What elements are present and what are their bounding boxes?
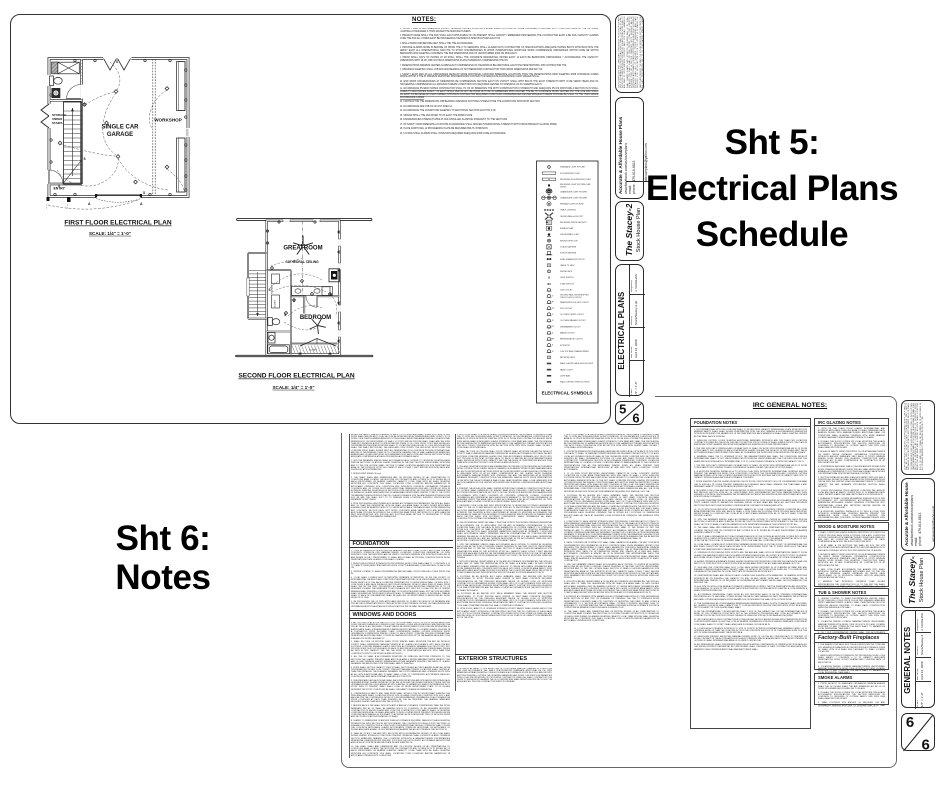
svg-text:CATHEDRAL CEILING: CATHEDRAL CEILING (285, 260, 319, 264)
svg-text:G: G (552, 296, 553, 298)
svg-text:A: A (140, 202, 143, 206)
svg-text:6: 6 (632, 411, 639, 426)
svg-text:SINGLE CAR: SINGLE CAR (101, 125, 139, 131)
svg-text:220V OUTLET: 220V OUTLET (560, 308, 573, 310)
svg-text:CLOSET: CLOSET (309, 350, 318, 352)
svg-text:LIGHT BAR: LIGHT BAR (560, 375, 571, 378)
svg-text:2: 2 (67, 208, 69, 210)
svg-text:WP: WP (551, 302, 553, 304)
svg-text:S: S (58, 184, 60, 188)
svg-text:DISHWASHER OUTLET: DISHWASHER OUTLET (560, 325, 582, 328)
svg-text:SCALE: 1/4" = 1'-0": SCALE: 1/4" = 1'-0" (272, 385, 314, 390)
svg-text:SCALE: 1/4" = 1'-0": SCALE: 1/4" = 1'-0" (89, 231, 131, 236)
svg-text:STAIRS: STAIRS (52, 121, 62, 125)
svg-text:A: A (88, 202, 91, 206)
svg-text:BEDROOM: BEDROOM (300, 315, 331, 321)
svg-text:WORKSHOP: WORKSHOP (154, 118, 182, 123)
svg-text:SECOND FLOOR ELECTRICAL PLAN: SECOND FLOOR ELECTRICAL PLAN (238, 373, 355, 380)
svg-text:LIGHT SWITCH: LIGHT SWITCH (560, 277, 574, 279)
svg-text:R: R (552, 332, 553, 334)
svg-text:LOW VOLTAGE TRANSFORMER: LOW VOLTAGE TRANSFORMER (560, 350, 589, 353)
svg-text:CABLE TV JACK: CABLE TV JACK (560, 264, 575, 267)
svg-text:DUAL SPEAKER SPOT/LITE: DUAL SPEAKER SPOT/LITE (560, 258, 585, 261)
svg-text:EXTERIOR: EXTERIOR (560, 345, 570, 347)
svg-text:N: N (548, 357, 549, 359)
svg-text:CLOTHES WASHER OUTLET: CLOTHES WASHER OUTLET (560, 319, 587, 322)
svg-text:E: E (552, 345, 553, 347)
svg-text:VANITY LIGHT: VANITY LIGHT (560, 368, 574, 371)
svg-text:NETWORK JACK: NETWORK JACK (560, 356, 576, 359)
svg-text:WALL LIGHTED HALF HIGH SCONCE: WALL LIGHTED HALF HIGH SCONCE (560, 362, 594, 365)
svg-text:S: S (269, 288, 271, 292)
svg-text:220: 220 (551, 308, 554, 310)
svg-text:3 WAY SWITCH: 3 WAY SWITCH (560, 282, 574, 285)
svg-text:RANGE OUTLET: RANGE OUTLET (560, 332, 576, 335)
svg-text:CLOTHES DRYER OUTLET: CLOTHES DRYER OUTLET (560, 314, 585, 316)
svg-text:LV: LV (552, 351, 554, 353)
svg-text:D: D (552, 314, 553, 316)
svg-text:FIRST FLOOR ELECTRICAL PLAN: FIRST FLOOR ELECTRICAL PLAN (64, 220, 171, 227)
svg-text:S: S (143, 191, 145, 195)
svg-text:6: 6 (905, 714, 913, 731)
svg-text:S3: S3 (547, 282, 551, 286)
svg-text:S: S (548, 276, 550, 280)
svg-text:GARAGE: GARAGE (107, 132, 133, 138)
svg-text:5: 5 (619, 402, 626, 416)
svg-text:S: S (293, 299, 295, 303)
svg-text:PHONE JACK: PHONE JACK (560, 270, 573, 273)
svg-text:ELECTRICAL SYMBOLS: ELECTRICAL SYMBOLS (542, 391, 593, 396)
svg-text:6: 6 (921, 736, 929, 752)
svg-text:110V OUTLET: 110V OUTLET (560, 290, 573, 292)
svg-text:CIRCUIT (GFCI) OUTLET: CIRCUIT (GFCI) OUTLET (560, 297, 583, 299)
svg-text:S: S (330, 293, 332, 297)
svg-text:REF: REF (551, 338, 554, 340)
svg-text:REFRIGERATOR OUTLET: REFRIGERATOR OUTLET (560, 338, 584, 341)
svg-text:2: 2 (46, 208, 48, 210)
svg-text:S: S (116, 60, 118, 64)
svg-text:S: S (84, 157, 86, 161)
svg-text:CLOSET: CLOSET (275, 299, 277, 308)
svg-text:GREATROOM: GREATROOM (283, 246, 322, 252)
svg-text:WALL LIGHTED TRIPLE SCONCE: WALL LIGHTED TRIPLE SCONCE (560, 381, 590, 384)
svg-text:P: P (548, 271, 549, 273)
svg-text:S: S (284, 313, 286, 317)
svg-text:WEATHERPROOF GFCI OUTLET: WEATHERPROOF GFCI OUTLET (560, 301, 590, 304)
